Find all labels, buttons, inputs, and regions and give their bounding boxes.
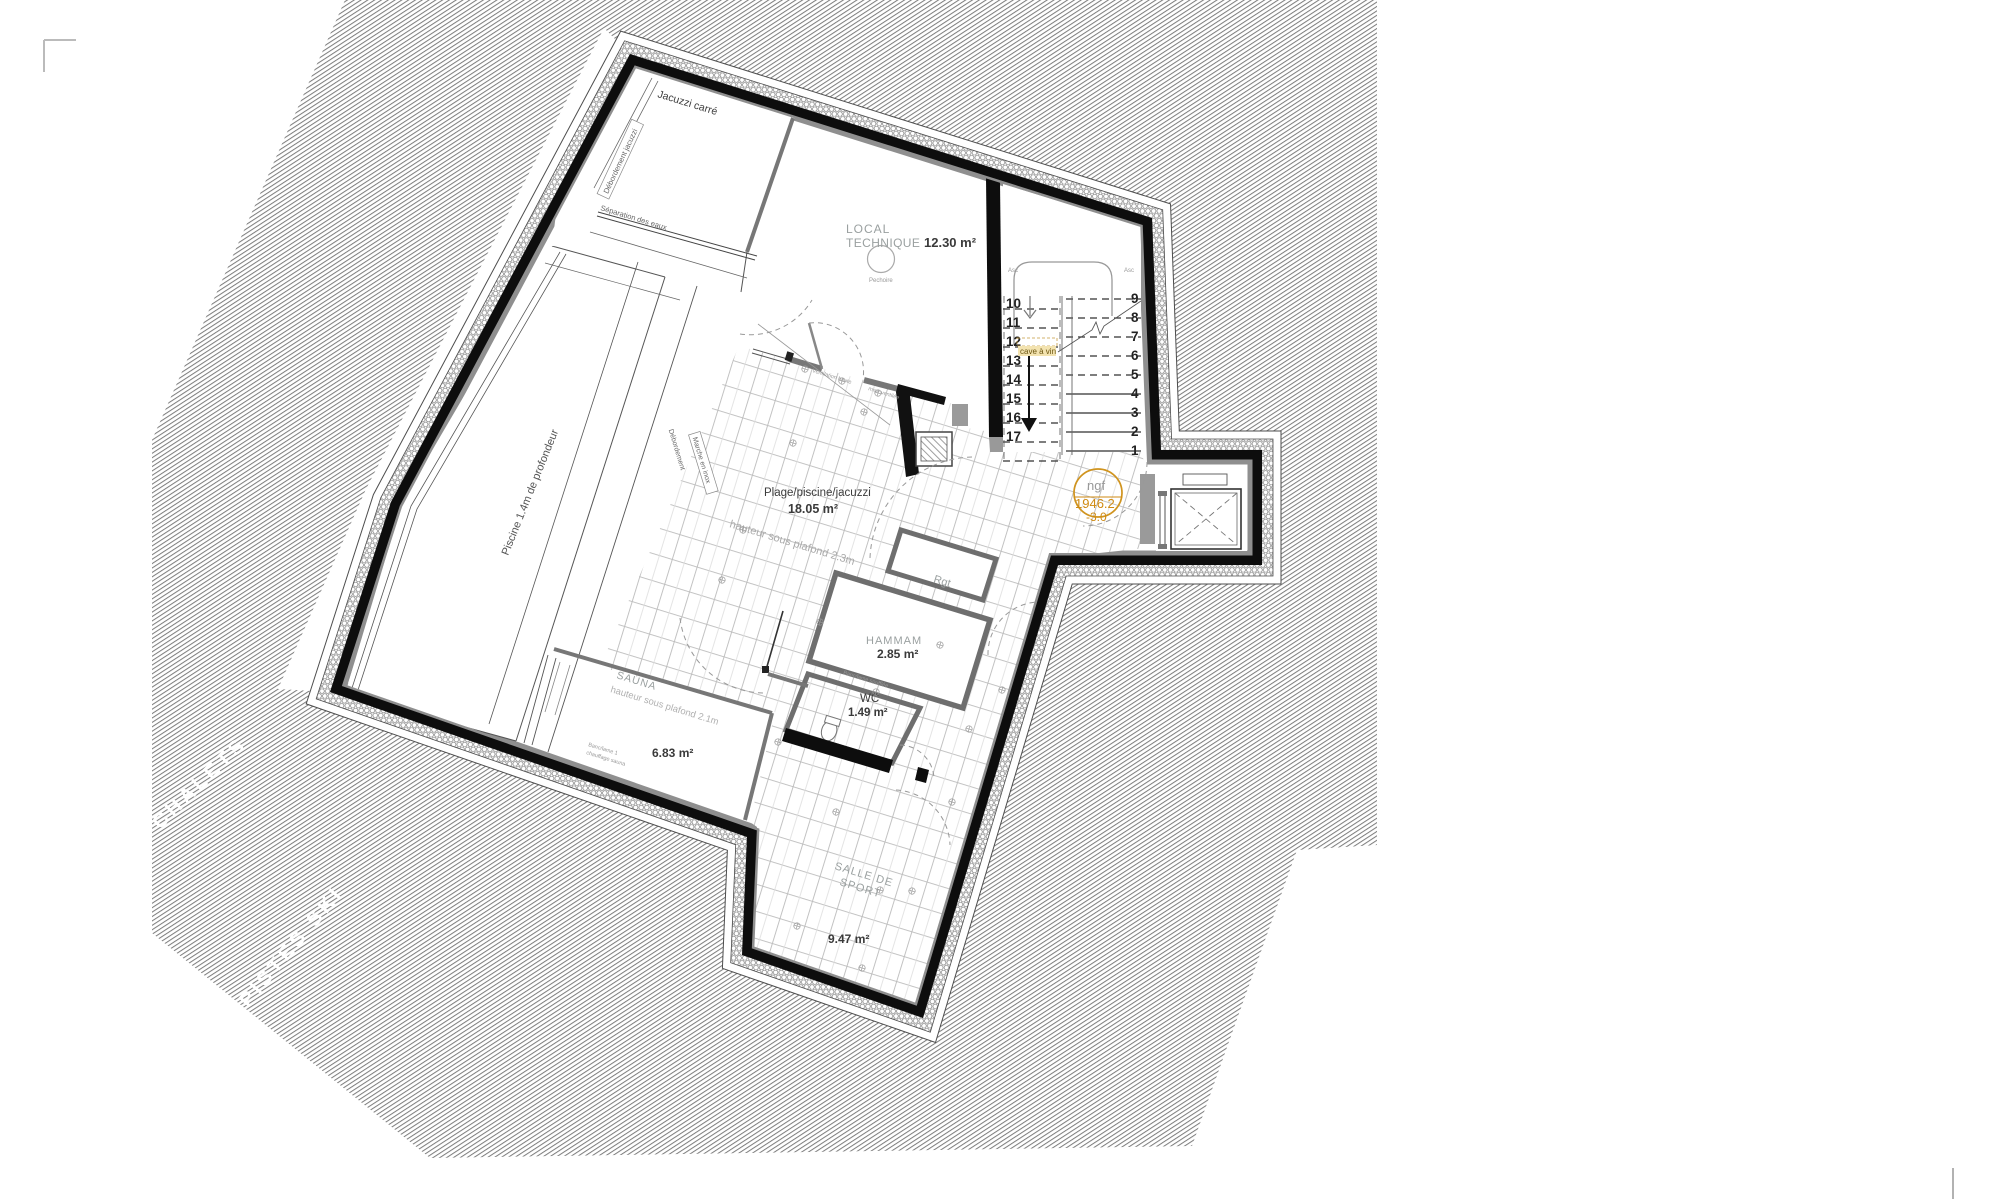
svg-text:Pechoire: Pechoire: [869, 278, 893, 284]
svg-text:7: 7: [1131, 329, 1139, 344]
svg-text:18.05 m²: 18.05 m²: [788, 502, 838, 516]
svg-text:WC: WC: [860, 693, 879, 705]
svg-text:12.30 m²: 12.30 m²: [924, 235, 977, 250]
svg-text:6.83 m²: 6.83 m²: [652, 746, 693, 760]
svg-text:Asc: Asc: [1008, 268, 1018, 274]
svg-text:15: 15: [1006, 391, 1022, 406]
svg-text:14: 14: [1006, 372, 1022, 387]
svg-text:9.47 m²: 9.47 m²: [828, 932, 869, 946]
svg-text:6: 6: [1131, 348, 1139, 363]
svg-text:2: 2: [1131, 424, 1139, 439]
svg-text:5: 5: [1131, 367, 1139, 382]
svg-text:17: 17: [1006, 429, 1021, 444]
svg-text:cave à vin: cave à vin: [1020, 347, 1056, 356]
svg-text:8: 8: [1131, 310, 1139, 325]
svg-text:1: 1: [1131, 443, 1139, 458]
svg-text:Plage/piscine/jacuzzi: Plage/piscine/jacuzzi: [764, 487, 871, 499]
svg-text:LOCAL: LOCAL: [846, 222, 890, 236]
svg-text:4: 4: [1131, 386, 1139, 401]
svg-text:3: 3: [1131, 405, 1139, 420]
svg-text:11: 11: [1006, 315, 1021, 330]
svg-text:Asc: Asc: [1124, 268, 1134, 274]
svg-text:1946.2: 1946.2: [1075, 496, 1115, 511]
svg-text:1.49 m²: 1.49 m²: [848, 707, 888, 719]
svg-text:-3.0: -3.0: [1086, 510, 1107, 524]
svg-text:2.85 m²: 2.85 m²: [877, 647, 918, 661]
svg-text:10: 10: [1006, 296, 1021, 311]
svg-text:HAMMAM: HAMMAM: [866, 635, 922, 647]
svg-text:TECHNIQUE: TECHNIQUE: [846, 236, 920, 250]
svg-text:ngf: ngf: [1087, 478, 1105, 493]
svg-text:16: 16: [1006, 410, 1022, 425]
